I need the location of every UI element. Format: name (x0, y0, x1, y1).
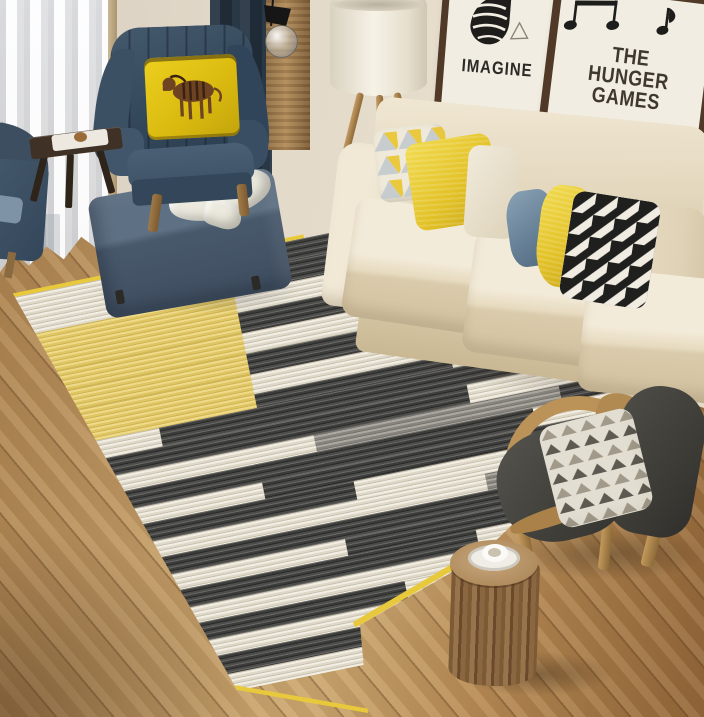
pendant-bulb-icon (265, 25, 298, 58)
accent-chair-cushion (0, 194, 24, 224)
zebra-icon (154, 66, 231, 128)
floor-lamp-shade (330, 0, 427, 96)
poster-imagine-title: IMAGINE (443, 54, 550, 83)
mosaic-pattern (558, 190, 662, 310)
coffee-cup-inner (488, 548, 501, 557)
snack-item (74, 132, 87, 142)
black-white-mosaic-pillow (558, 190, 662, 310)
zebra-pillow (144, 54, 240, 141)
living-room-photo: IMAGINE THE HUNGER GAMES (0, 0, 704, 717)
zebra-icon (445, 0, 541, 56)
